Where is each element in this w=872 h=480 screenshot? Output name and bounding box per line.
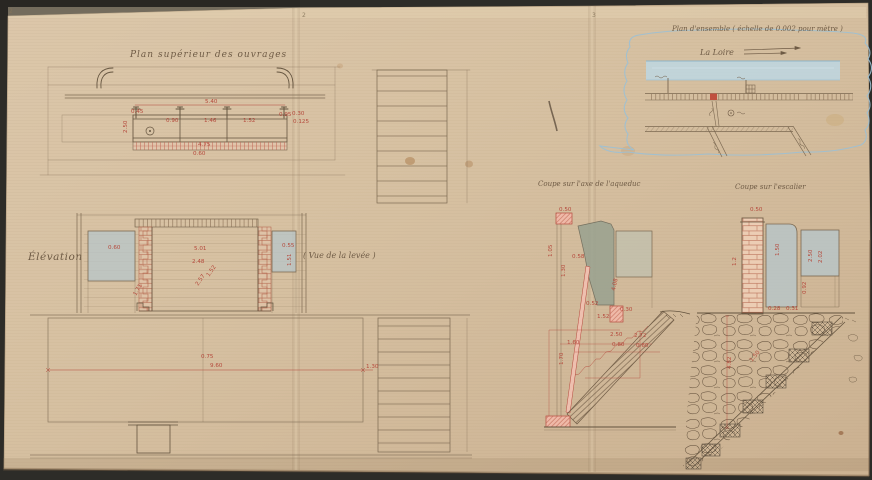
- dimension-label: 0.80: [612, 342, 625, 348]
- dimension-label: 0.58: [572, 254, 585, 260]
- elevation-note: ( Vue de la levée ): [303, 251, 376, 260]
- crenellated-cornice: [135, 219, 258, 227]
- top-fold-highlight: [8, 7, 866, 18]
- dimension-label: 1.60: [567, 340, 580, 346]
- dimension-label: 2.50: [808, 249, 814, 262]
- brick-quoin-left: [139, 227, 152, 311]
- dimension-label: 0.50: [559, 207, 572, 213]
- dimension-label: 0.45: [131, 109, 144, 115]
- dimension-label: 4.75: [198, 142, 211, 148]
- dimension-label: 0.60: [636, 343, 649, 349]
- dimension-label: 4.82: [727, 357, 733, 369]
- dimension-label: 2.72: [634, 333, 646, 339]
- dimension-label: 5.01: [194, 246, 207, 252]
- dimension-label: 0.30: [292, 111, 305, 117]
- paper-stain: [337, 64, 343, 69]
- map-title: Plan d'ensemble ( échelle de 0.002 pour …: [671, 25, 843, 33]
- top-red-block: [556, 213, 572, 224]
- dimension-label: 0.75: [201, 354, 214, 360]
- dimension-label: 1.52: [597, 314, 609, 320]
- dimension-label: 1.70: [559, 352, 565, 365]
- dimension-label: 0.28: [768, 306, 781, 312]
- dimension-label: 1.30: [366, 364, 379, 370]
- river-band: [646, 61, 840, 80]
- dimension-label: 5.40: [205, 99, 218, 105]
- coupe-axe-title: Coupe sur l'axe de l'aqueduc: [538, 180, 641, 188]
- elevation-title: Élévation: [27, 249, 83, 263]
- ink-dot: [839, 431, 844, 435]
- dimension-label: 2.02: [818, 251, 824, 263]
- dimension-label: 1.52: [243, 118, 255, 124]
- dimension-label: 0.50: [750, 207, 763, 213]
- map-river-label: La Loire: [699, 48, 734, 57]
- left-blue-panel: [88, 231, 135, 281]
- dimension-label: 0.60: [108, 245, 121, 251]
- dimension-label: 0.30: [620, 307, 633, 313]
- paper-stain: [826, 114, 844, 126]
- dimension-label: 1.50: [775, 243, 781, 256]
- paper-stain: [621, 146, 635, 156]
- dimension-label: 0.95: [279, 112, 292, 118]
- brick-pillar: [740, 218, 765, 314]
- ouvrage-marker-red: [710, 94, 717, 101]
- dimension-label: 2.50: [123, 120, 129, 133]
- fold-number-pencil: 3: [592, 12, 596, 19]
- dimension-label: 1.46: [204, 118, 217, 124]
- dimension-label: 0.55: [282, 243, 295, 249]
- dimension-label: 0.60: [193, 151, 206, 157]
- dimension-label: 1.51: [287, 253, 293, 266]
- dimension-label: 0.125: [293, 119, 309, 125]
- dimension-label: 0.31: [786, 306, 799, 312]
- dimension-label: 2.48: [192, 259, 205, 265]
- blue-panel-one: [766, 224, 797, 307]
- coupe-escalier-title: Coupe sur l'escalier: [735, 183, 806, 191]
- plan-superieur-title: Plan supérieur des ouvrages: [129, 49, 287, 60]
- dimension-label: 1.30: [561, 264, 567, 277]
- dimension-label: 0.90: [166, 118, 179, 124]
- right-edge-shade: [869, 240, 870, 476]
- wall-panel-light: [616, 231, 652, 277]
- dimension-label: 9.60: [210, 363, 223, 369]
- scanned-plan-page: 2 2 3 Plan supérieur des ouvrages: [0, 0, 872, 480]
- page-number-pencil: 2: [9, 8, 13, 15]
- dimension-label: 1.05: [548, 244, 554, 257]
- brick-quoin-right: [258, 227, 271, 311]
- dimension-label: 1.2: [732, 257, 738, 266]
- ink-stain: [465, 161, 473, 168]
- fold-number-pencil: 2: [302, 12, 306, 19]
- dimension-label: 0.92: [802, 282, 808, 294]
- dimension-label: 0.52: [586, 301, 598, 307]
- drawing-svg: 2 2 3 Plan supérieur des ouvrages: [0, 0, 872, 480]
- dimension-label: 2.50: [610, 332, 623, 338]
- well-center-dot: [149, 130, 151, 132]
